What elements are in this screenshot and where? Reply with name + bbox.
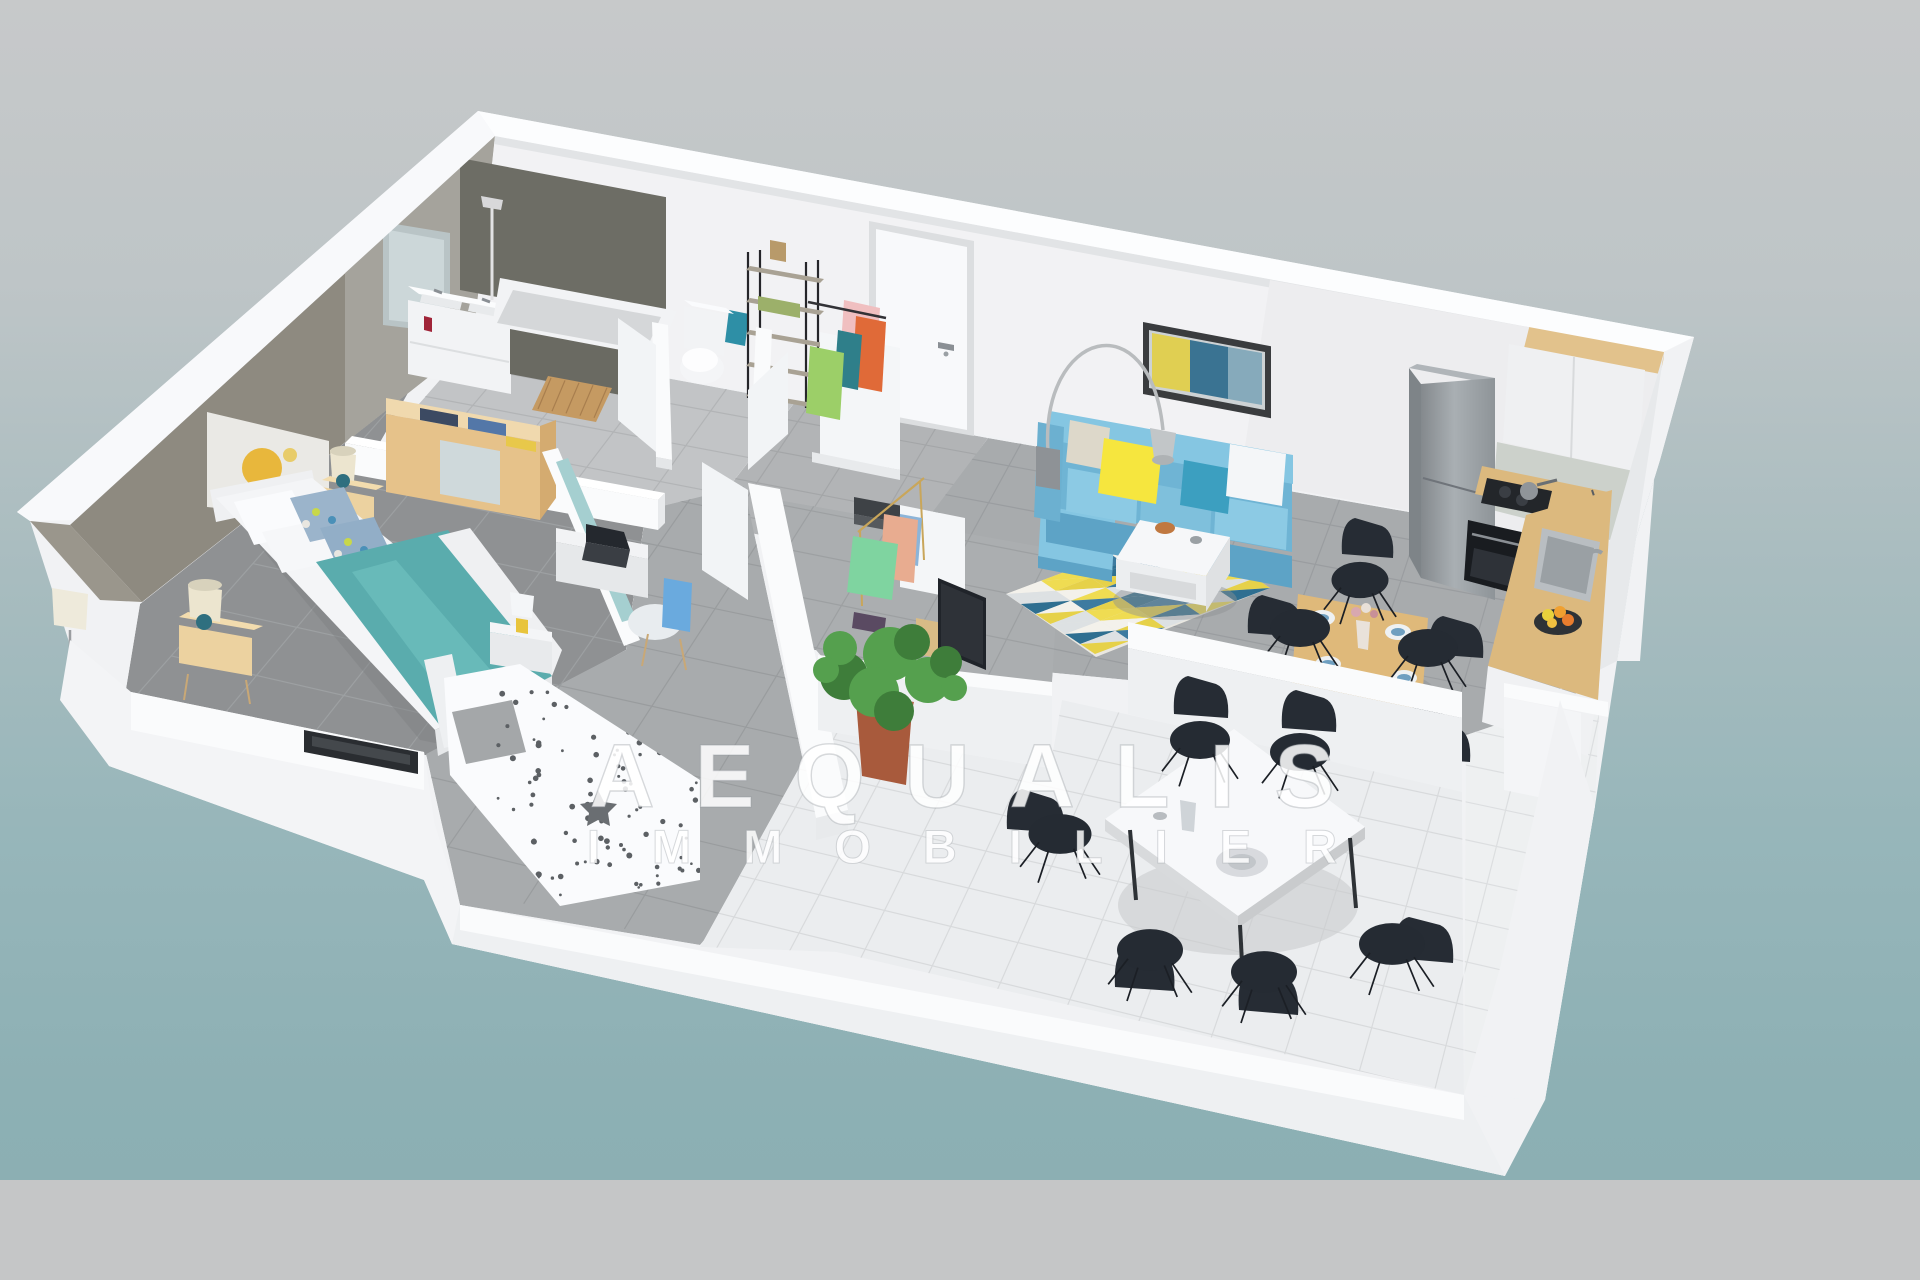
svg-text:IMMOBILIER: IMMOBILIER xyxy=(587,820,1389,873)
svg-text:AEQUALIS: AEQUALIS xyxy=(589,727,1374,827)
